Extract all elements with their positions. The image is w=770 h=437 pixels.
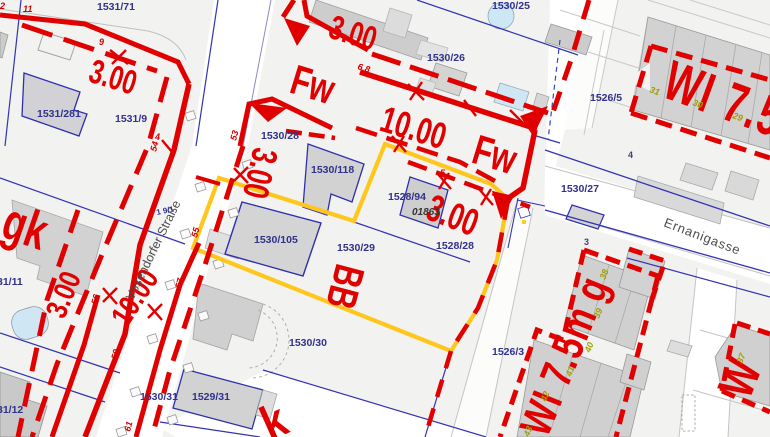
svg-text:1530/118: 1530/118 [311,164,354,176]
svg-text:1531/71: 1531/71 [97,1,135,13]
svg-text:1530/29: 1530/29 [337,242,375,254]
svg-text:1528/28: 1528/28 [436,240,474,252]
svg-text:1531/9: 1531/9 [115,113,147,125]
svg-text:1528/94: 1528/94 [388,191,426,203]
svg-text:1529/31: 1529/31 [192,391,230,403]
svg-text:1530/31: 1530/31 [140,391,178,403]
svg-text:1530/26: 1530/26 [427,52,465,64]
svg-text:1530/105: 1530/105 [254,234,298,246]
svg-text:2: 2 [0,1,5,11]
svg-text:1530/27: 1530/27 [561,183,599,195]
svg-text:1526/5: 1526/5 [590,92,622,104]
svg-text:1530/30: 1530/30 [289,337,327,349]
svg-text:1531/281: 1531/281 [37,108,81,120]
svg-text:1526/3: 1526/3 [492,346,524,358]
svg-text:9: 9 [99,37,104,47]
svg-text:01863: 01863 [412,207,440,218]
svg-text:4: 4 [154,132,160,142]
svg-text:1530/25: 1530/25 [492,0,530,12]
svg-text:4: 4 [628,150,633,160]
svg-text:11: 11 [23,4,32,14]
svg-text:3: 3 [584,237,589,247]
svg-text:31/12: 31/12 [0,404,23,416]
svg-text:1530/28: 1530/28 [261,130,299,142]
svg-text:31/11: 31/11 [0,276,23,288]
